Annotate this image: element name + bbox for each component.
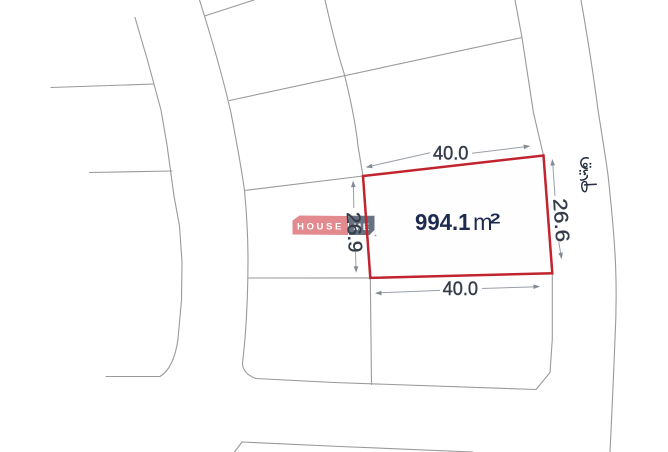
svg-text:26.9: 26.9 (342, 212, 366, 254)
svg-text:2: 2 (490, 210, 501, 227)
svg-text:26.6: 26.6 (548, 198, 573, 243)
svg-text:40.0: 40.0 (443, 278, 479, 300)
svg-text:40.0: 40.0 (433, 143, 469, 165)
svg-text:994.1: 994.1 (415, 209, 471, 235)
svg-text:HOUSE: HOUSE (297, 222, 344, 233)
